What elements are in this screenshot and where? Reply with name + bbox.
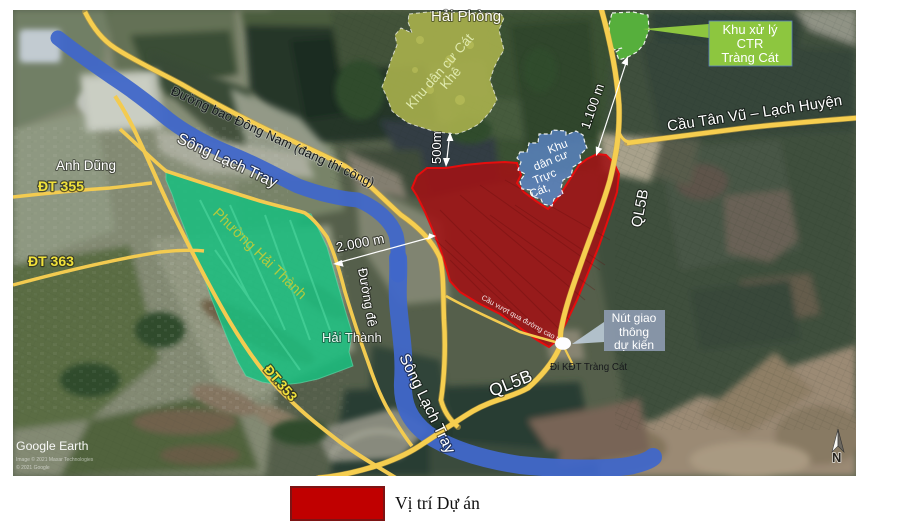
svg-text:Tràng Cát: Tràng Cát	[721, 50, 779, 65]
svg-text:Đi KĐT Tràng Cát: Đi KĐT Tràng Cát	[550, 362, 627, 373]
svg-text:Image © 2021 Maxar Technologie: Image © 2021 Maxar Technologies	[16, 456, 94, 463]
svg-text:© 2021 Google: © 2021 Google	[16, 464, 50, 471]
svg-text:500m: 500m	[429, 131, 444, 164]
svg-text:dự kiến: dự kiến	[614, 338, 654, 352]
svg-text:Nút giao: Nút giao	[612, 311, 657, 325]
svg-text:Google Earth: Google Earth	[16, 439, 89, 453]
svg-text:Anh Dũng: Anh Dũng	[56, 158, 116, 173]
svg-text:ĐT 363: ĐT 363	[28, 253, 74, 269]
svg-text:Khu xử lý: Khu xử lý	[723, 22, 778, 37]
svg-text:Hải Thành: Hải Thành	[322, 330, 382, 345]
svg-text:ĐT 355: ĐT 355	[38, 178, 84, 194]
svg-text:thông: thông	[619, 325, 649, 339]
svg-text:Vị trí Dự án: Vị trí Dự án	[395, 493, 480, 513]
svg-text:Hải Phòng: Hải Phòng	[431, 8, 501, 25]
svg-text:CTR: CTR	[737, 36, 764, 51]
svg-text:N: N	[832, 450, 841, 465]
